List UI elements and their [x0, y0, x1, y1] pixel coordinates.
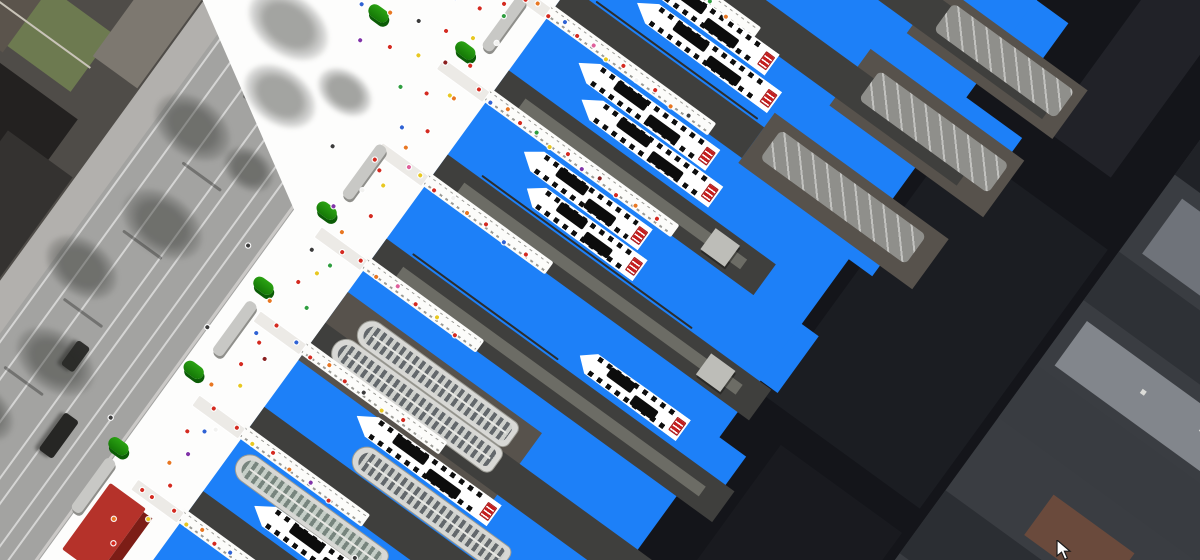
harbor-plan-aerial-image	[0, 0, 1200, 560]
mouse-cursor	[1056, 540, 1076, 560]
